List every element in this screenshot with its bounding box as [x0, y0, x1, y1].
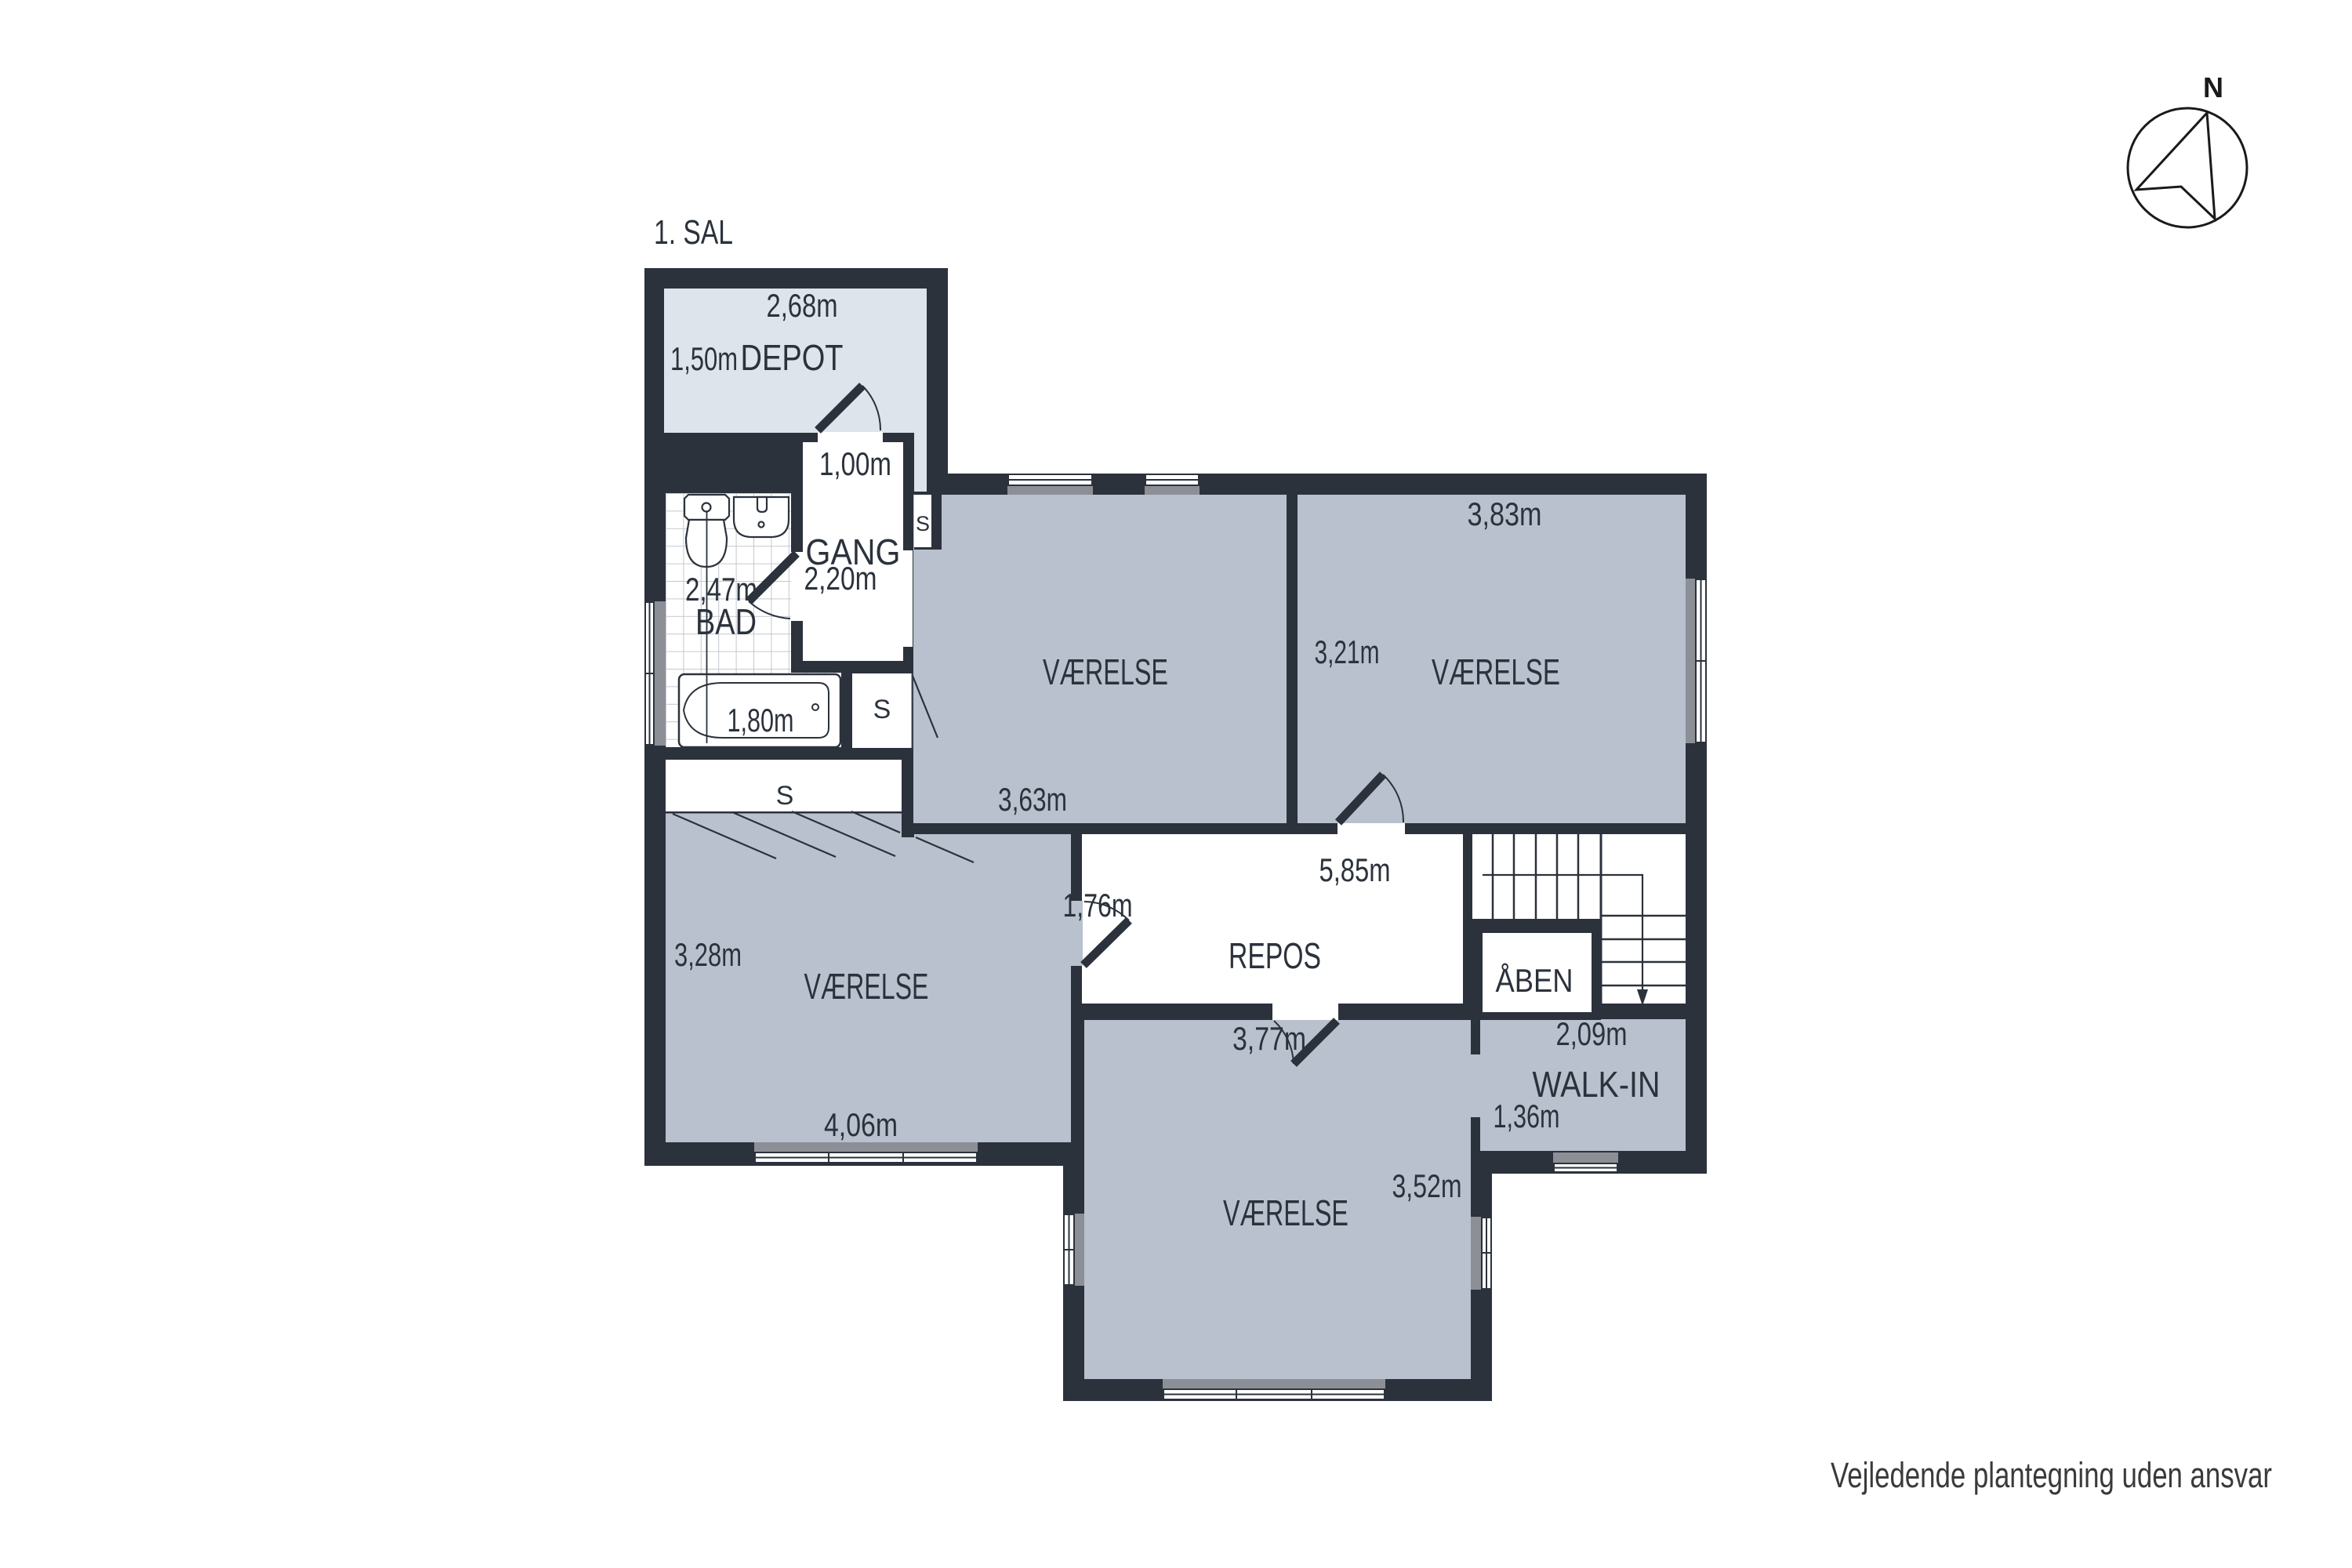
svg-text:N: N [2203, 71, 2223, 103]
svg-text:S: S [873, 695, 891, 724]
svg-text:1. SAL: 1. SAL [654, 213, 733, 252]
svg-text:DEPOT: DEPOT [741, 337, 844, 378]
svg-text:1,36m: 1,36m [1494, 1098, 1560, 1134]
svg-text:1,76m: 1,76m [1063, 887, 1133, 924]
svg-text:VÆRELSE: VÆRELSE [804, 966, 929, 1007]
svg-text:2,20m: 2,20m [804, 560, 877, 597]
svg-text:4,06m: 4,06m [824, 1106, 898, 1143]
svg-text:3,83m: 3,83m [1468, 495, 1542, 532]
svg-text:5,85m: 5,85m [1319, 851, 1391, 888]
svg-text:REPOS: REPOS [1229, 935, 1321, 976]
svg-text:3,52m: 3,52m [1392, 1167, 1462, 1204]
svg-text:VÆRELSE: VÆRELSE [1432, 652, 1560, 692]
svg-text:VÆRELSE: VÆRELSE [1223, 1192, 1348, 1233]
svg-text:BAD: BAD [695, 601, 757, 642]
svg-text:S: S [776, 781, 794, 811]
svg-text:2,68m: 2,68m [767, 287, 838, 324]
svg-text:1,50m: 1,50m [670, 340, 738, 377]
svg-text:3,21m: 3,21m [1315, 633, 1380, 670]
svg-text:3,28m: 3,28m [674, 936, 742, 973]
svg-text:1,00m: 1,00m [819, 445, 891, 482]
svg-text:2,09m: 2,09m [1556, 1015, 1628, 1052]
svg-text:Vejledende plantegning uden an: Vejledende plantegning uden ansvar [1831, 1455, 2272, 1495]
svg-text:ÅBEN: ÅBEN [1496, 962, 1573, 999]
svg-text:3,63m: 3,63m [998, 781, 1067, 818]
svg-text:S: S [916, 512, 930, 535]
svg-text:3,77m: 3,77m [1232, 1020, 1306, 1057]
svg-text:1,80m: 1,80m [728, 702, 794, 739]
svg-text:VÆRELSE: VÆRELSE [1043, 652, 1168, 692]
